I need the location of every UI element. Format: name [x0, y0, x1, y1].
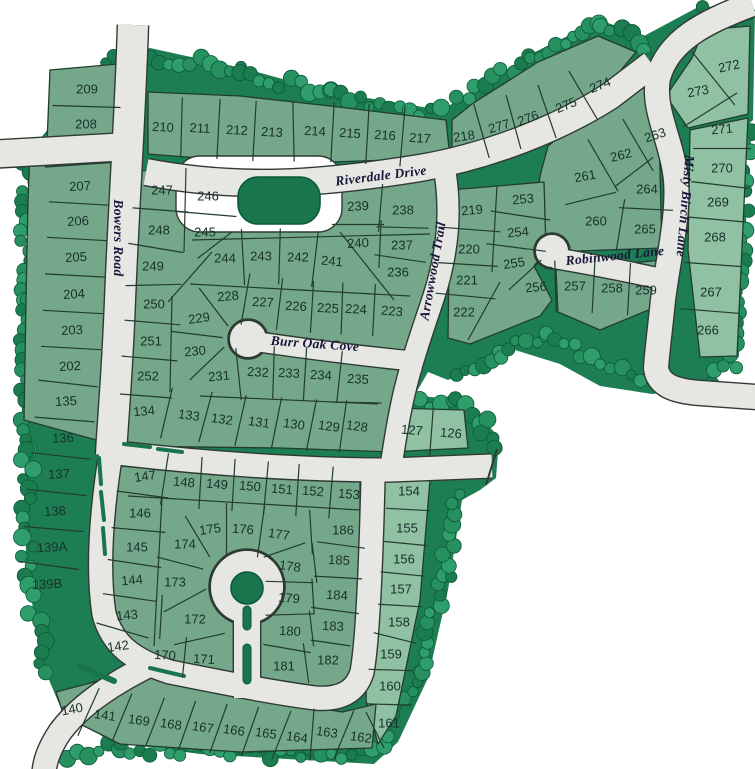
- lot-label-165: 165: [254, 724, 278, 742]
- lot-label-157: 157: [390, 582, 412, 597]
- tree-icon: [559, 338, 569, 348]
- lot-label-134: 134: [133, 403, 156, 420]
- lot-label-180: 180: [279, 623, 301, 639]
- lot-label-242: 242: [287, 250, 309, 265]
- lot-label-167: 167: [191, 718, 215, 736]
- lot-label-265: 265: [634, 222, 656, 237]
- tree-icon: [38, 665, 53, 680]
- lot-label-229: 229: [187, 309, 211, 327]
- lot-label-133: 133: [177, 406, 201, 424]
- lot-label-253: 253: [512, 191, 535, 208]
- lot-label-169: 169: [127, 711, 151, 729]
- lot-label-250: 250: [143, 297, 165, 312]
- lot-label-251: 251: [140, 334, 162, 349]
- lot-label-131: 131: [247, 413, 271, 431]
- lot-label-228: 228: [217, 288, 240, 305]
- lot-label-218: 218: [452, 127, 476, 145]
- lot-label-224: 224: [345, 301, 367, 317]
- cul-de-sac-island: [231, 572, 263, 604]
- tree-icon: [420, 657, 434, 671]
- tree-icon: [487, 440, 502, 455]
- lot-label-163: 163: [315, 723, 339, 741]
- tree-icon: [296, 752, 306, 762]
- lot-label-153: 153: [338, 486, 361, 503]
- median-island: [243, 606, 251, 630]
- tree-icon: [455, 489, 465, 499]
- lot-label-128: 128: [345, 417, 369, 435]
- lot-label-207: 207: [69, 178, 91, 194]
- lot-label-254: 254: [507, 224, 530, 241]
- pond: [238, 177, 320, 224]
- lot-label-256: 256: [525, 279, 548, 296]
- tree-icon: [15, 235, 26, 246]
- lot-label-260: 260: [585, 214, 607, 229]
- lot-label-136: 136: [52, 430, 74, 446]
- lot-label-231: 231: [208, 368, 231, 385]
- lot-label-173: 173: [164, 575, 186, 590]
- lot-label-176: 176: [232, 521, 255, 538]
- lot-label-170: 170: [154, 647, 176, 663]
- lot-label-172: 172: [184, 612, 206, 627]
- lot-label-269: 269: [707, 195, 729, 210]
- lot-label-271: 271: [711, 121, 734, 138]
- street-label-bowers-road: Bowers Road: [111, 198, 126, 276]
- lot-label-175: 175: [198, 520, 222, 538]
- tree-icon: [524, 52, 535, 63]
- lot-label-221: 221: [456, 273, 478, 288]
- lot-label-130: 130: [282, 415, 306, 433]
- lot-label-238: 238: [392, 203, 414, 218]
- lot-label-178: 178: [278, 557, 302, 575]
- lot-label-138: 138: [44, 503, 66, 519]
- road-surface: [0, 147, 120, 154]
- lot-label-141: 141: [93, 706, 117, 724]
- lot-label-220: 220: [458, 242, 480, 257]
- lot-label-235: 235: [347, 371, 369, 387]
- lot-label-155: 155: [396, 521, 418, 536]
- tree-icon: [433, 99, 450, 116]
- lot-label-240: 240: [347, 235, 369, 251]
- lot-label-139A: 139A: [36, 539, 67, 556]
- lot-label-186: 186: [332, 523, 354, 538]
- lot-label-252: 252: [137, 369, 159, 384]
- lot-label-152: 152: [302, 483, 325, 500]
- tree-icon: [569, 338, 581, 350]
- lot-label-208: 208: [75, 117, 97, 132]
- lot-label-216: 216: [374, 127, 397, 143]
- lot-label-149: 149: [206, 476, 229, 493]
- lot-label-126: 126: [440, 425, 463, 442]
- lot-label-213: 213: [261, 124, 283, 140]
- lot-label-267: 267: [700, 285, 722, 300]
- lot-label-158: 158: [388, 615, 410, 630]
- plat-map-svg: 2092082102112122132142152162172182772762…: [0, 0, 755, 769]
- lot-label-255: 255: [502, 254, 526, 272]
- lot-label-237: 237: [391, 238, 413, 253]
- lot-label-184: 184: [326, 587, 348, 603]
- tree-icon: [473, 425, 489, 441]
- lot-label-257: 257: [564, 279, 586, 294]
- lot-label-249: 249: [142, 259, 164, 274]
- lot-label-215: 215: [339, 125, 362, 141]
- lot-label-226: 226: [285, 298, 307, 314]
- lot-label-223: 223: [381, 303, 404, 320]
- lot-label-212: 212: [226, 122, 248, 138]
- lot-label-154: 154: [398, 484, 420, 499]
- lot-label-162: 162: [349, 728, 373, 746]
- tree-icon: [15, 550, 27, 562]
- tree-icon: [604, 26, 615, 37]
- plat-map: 2092082102112122132142152162172182772762…: [0, 0, 755, 769]
- lot-label-145: 145: [126, 540, 148, 555]
- lot-label-147: 147: [133, 467, 157, 485]
- lot-label-211: 211: [189, 120, 210, 136]
- lot-label-203: 203: [61, 322, 83, 338]
- lot-label-244: 244: [214, 251, 236, 266]
- lot-label-241: 241: [321, 253, 344, 270]
- lot-label-236: 236: [387, 265, 409, 280]
- lot-label-259: 259: [635, 283, 657, 298]
- lot-label-161: 161: [378, 716, 400, 731]
- lot-label-214: 214: [304, 123, 326, 139]
- lot-label-264: 264: [636, 182, 658, 197]
- lot-label-248: 248: [148, 223, 170, 238]
- tree-icon: [408, 687, 418, 697]
- lot-label-181: 181: [273, 659, 295, 674]
- lot-label-202: 202: [59, 358, 81, 374]
- lot-label-137: 137: [48, 466, 70, 482]
- lot-label-246: 246: [197, 189, 219, 204]
- tree-icon: [336, 753, 348, 765]
- lot-label-217: 217: [409, 130, 432, 146]
- lot-label-146: 146: [129, 506, 151, 521]
- tree-icon: [449, 90, 463, 104]
- lot-label-219: 219: [461, 202, 484, 219]
- lot-label-148: 148: [173, 474, 196, 491]
- lot-label-239: 239: [347, 198, 369, 214]
- lot-label-171: 171: [193, 651, 215, 667]
- tree-icon: [174, 749, 186, 761]
- lot-label-179: 179: [278, 590, 301, 607]
- lot-label-156: 156: [393, 552, 415, 567]
- lot-label-168: 168: [159, 715, 183, 733]
- lot-label-230: 230: [184, 343, 207, 360]
- lot-label-132: 132: [210, 410, 234, 428]
- tree-icon: [518, 333, 533, 348]
- lot-label-233: 233: [278, 365, 300, 381]
- lot-label-210: 210: [152, 119, 174, 135]
- lot-label-160: 160: [379, 679, 401, 694]
- tree-icon: [424, 608, 434, 618]
- lot-label-183: 183: [322, 618, 344, 634]
- lot-label-135: 135: [55, 393, 77, 409]
- lot-label-247: 247: [151, 183, 173, 198]
- lot-label-129: 129: [317, 417, 341, 435]
- lot-label-143: 143: [116, 607, 139, 624]
- lot-label-206: 206: [67, 213, 89, 229]
- lot-label-209: 209: [76, 82, 98, 97]
- lot-label-159: 159: [380, 647, 402, 662]
- lot-label-185: 185: [328, 552, 350, 568]
- median-island: [243, 644, 251, 684]
- lot-label-144: 144: [121, 572, 144, 589]
- lot-label-245: 245: [194, 225, 216, 240]
- lot-label-151: 151: [271, 481, 294, 498]
- tree-icon: [34, 645, 49, 660]
- lot-label-174: 174: [174, 537, 196, 552]
- tree-icon: [446, 498, 458, 510]
- lot-label-270: 270: [711, 161, 733, 176]
- lot-label-266: 266: [697, 323, 719, 338]
- lot-label-166: 166: [222, 721, 246, 739]
- tree-icon: [14, 528, 31, 545]
- lot-label-227: 227: [252, 294, 274, 310]
- tree-icon: [595, 359, 606, 370]
- tree-icon: [272, 82, 284, 94]
- tree-icon: [143, 748, 157, 762]
- lot-label-142: 142: [106, 637, 130, 655]
- tree-icon: [355, 91, 367, 103]
- lot-label-243: 243: [250, 249, 272, 264]
- lot-label-164: 164: [285, 728, 309, 746]
- lot-label-205: 205: [65, 249, 87, 265]
- tree-icon: [730, 362, 742, 374]
- lot-label-182: 182: [317, 653, 339, 668]
- lot-label-225: 225: [317, 300, 339, 316]
- lot-label-139B: 139B: [31, 576, 62, 593]
- lot-label-127: 127: [401, 422, 424, 439]
- lot-label-232: 232: [247, 364, 269, 380]
- lot-label-234: 234: [310, 367, 332, 383]
- lot-label-204: 204: [63, 286, 85, 302]
- lot-label-222: 222: [453, 305, 475, 320]
- lot-label-258: 258: [601, 281, 623, 296]
- tree-icon: [25, 461, 42, 478]
- tree-icon: [494, 62, 507, 75]
- lot-label-177: 177: [267, 525, 291, 543]
- lot-label-268: 268: [704, 230, 726, 245]
- lot-label-150: 150: [239, 478, 262, 495]
